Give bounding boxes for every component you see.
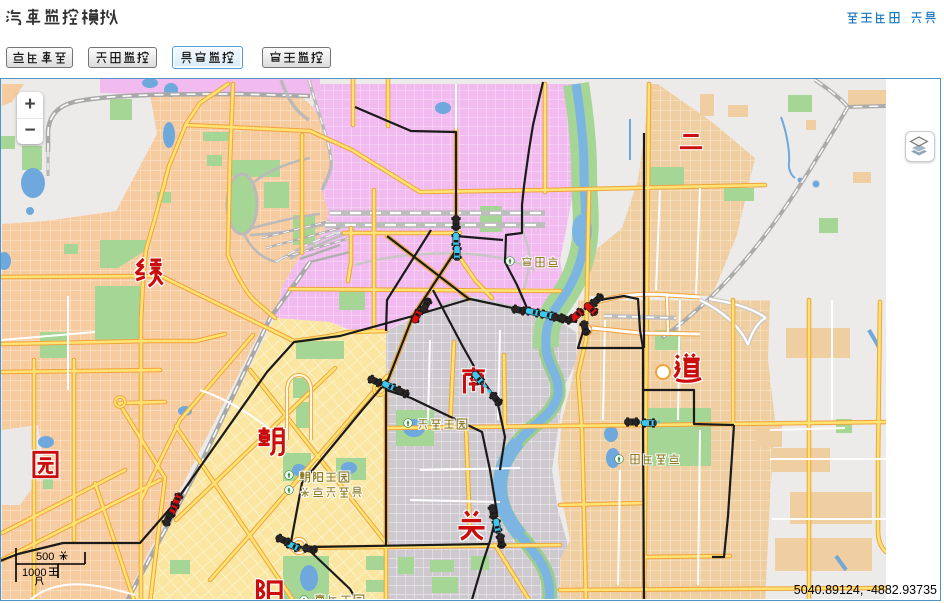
svg-text:1000: 1000: [22, 567, 46, 579]
svg-text:500: 500: [36, 551, 54, 563]
